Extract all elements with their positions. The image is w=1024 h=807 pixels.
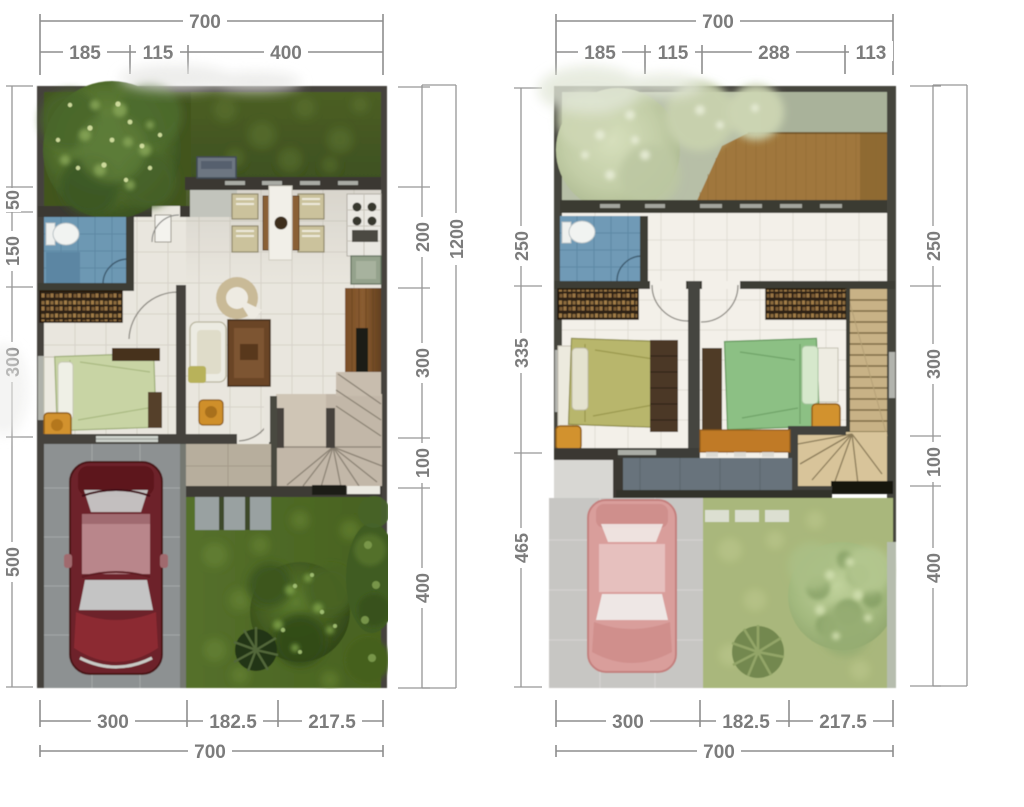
- svg-text:182.5: 182.5: [209, 712, 257, 733]
- svg-text:115: 115: [143, 43, 174, 64]
- svg-text:700: 700: [194, 742, 226, 763]
- svg-text:200: 200: [413, 222, 433, 252]
- svg-text:500: 500: [3, 547, 23, 577]
- svg-text:335: 335: [512, 338, 532, 368]
- svg-text:185: 185: [69, 43, 101, 64]
- svg-text:185: 185: [584, 43, 616, 64]
- svg-text:250: 250: [512, 231, 532, 261]
- svg-text:182.5: 182.5: [722, 712, 770, 733]
- svg-text:217.5: 217.5: [308, 712, 356, 733]
- svg-text:300: 300: [413, 348, 433, 378]
- svg-text:300: 300: [924, 349, 944, 379]
- svg-text:400: 400: [270, 43, 302, 64]
- svg-text:700: 700: [703, 742, 735, 763]
- svg-text:400: 400: [924, 553, 944, 583]
- svg-text:400: 400: [413, 573, 433, 603]
- svg-text:50: 50: [3, 190, 23, 210]
- svg-text:300: 300: [612, 712, 644, 733]
- svg-text:150: 150: [3, 236, 23, 266]
- svg-text:115: 115: [658, 43, 689, 64]
- svg-text:250: 250: [924, 231, 944, 261]
- svg-text:700: 700: [189, 12, 221, 33]
- svg-text:100: 100: [413, 448, 433, 478]
- svg-text:300: 300: [97, 712, 129, 733]
- svg-text:1200: 1200: [447, 219, 467, 259]
- svg-text:100: 100: [924, 447, 944, 477]
- svg-text:217.5: 217.5: [819, 712, 867, 733]
- svg-text:465: 465: [512, 533, 532, 563]
- svg-text:700: 700: [702, 12, 734, 33]
- svg-text:113: 113: [856, 43, 887, 64]
- svg-text:288: 288: [758, 43, 790, 64]
